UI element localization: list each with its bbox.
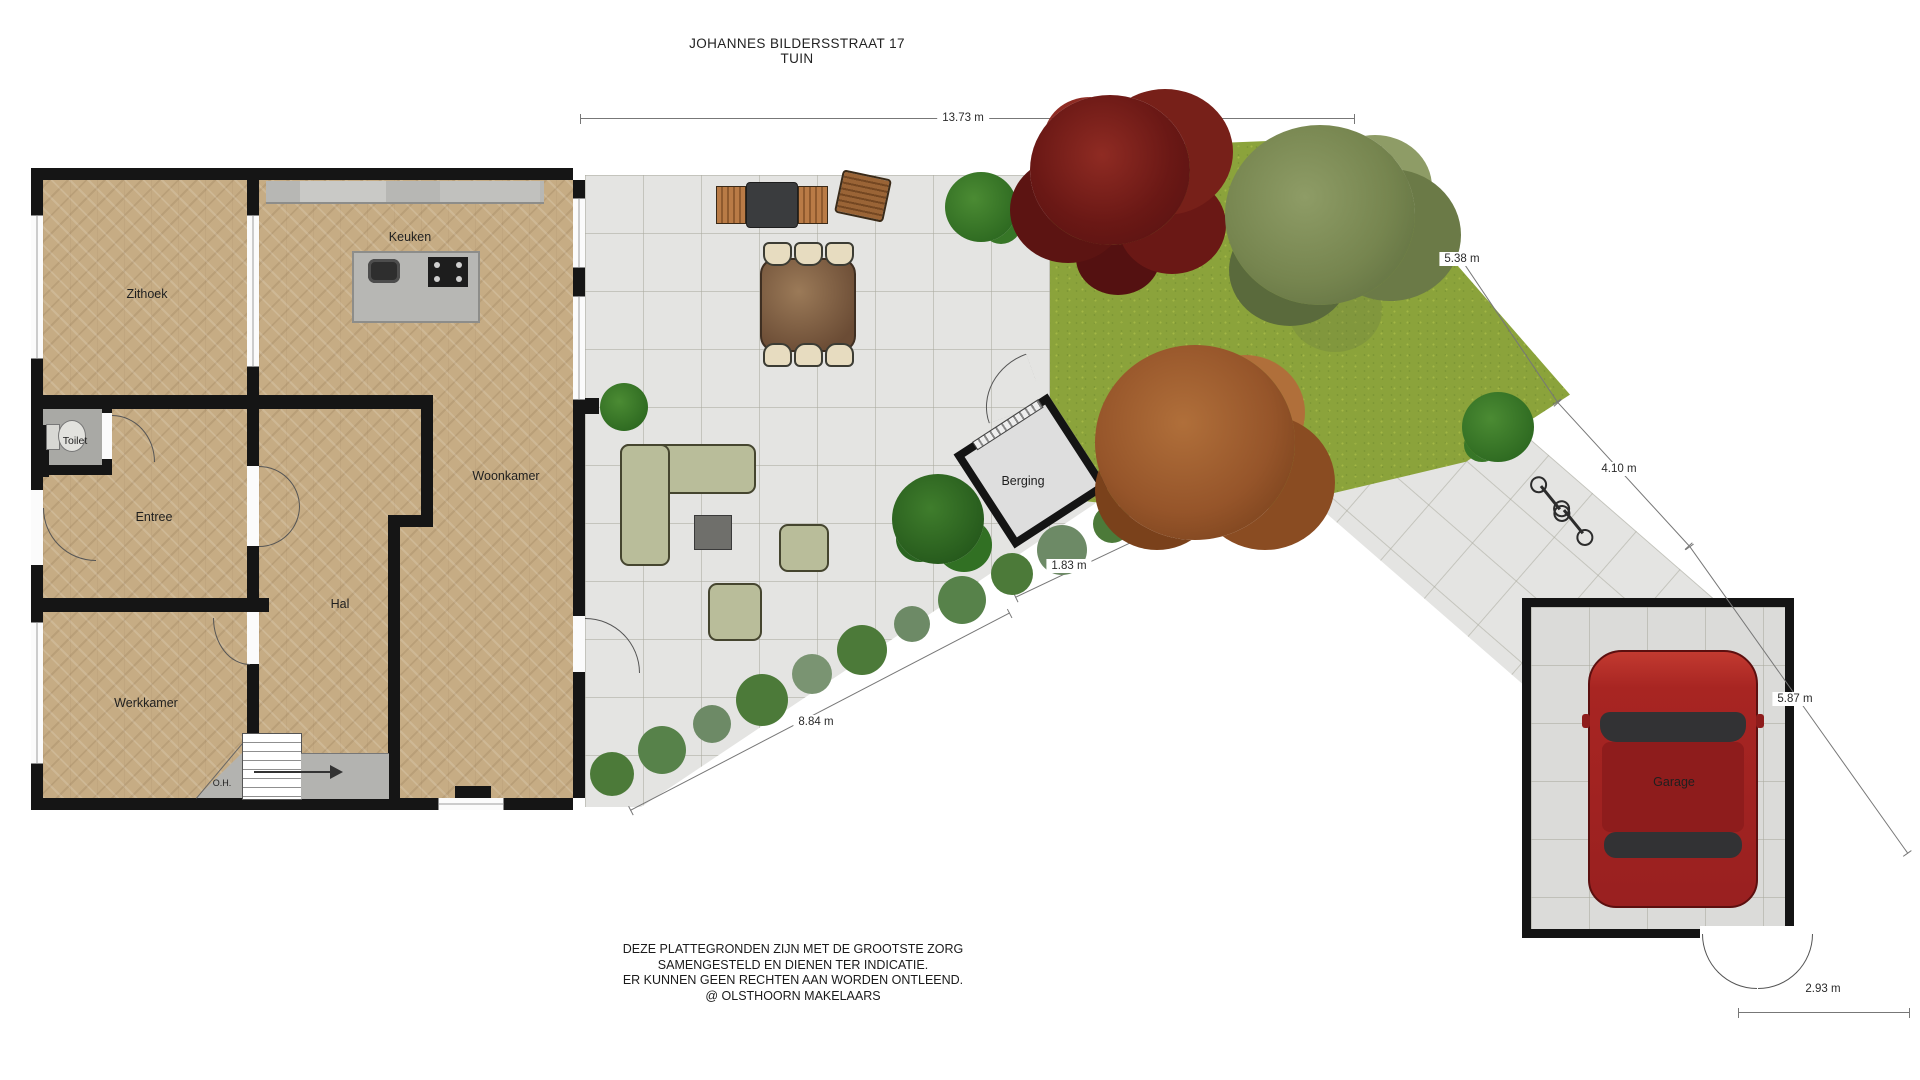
disclaimer: DEZE PLATTEGRONDEN ZIJN MET DE GROOTSTE … [583,942,1003,1004]
door-gap-entree [31,490,43,565]
garden-armchair-bottom [708,583,762,641]
bbq-side-left [716,186,746,224]
dining-chair [825,242,854,266]
dining-chair [825,343,854,367]
dining-chair [794,242,823,266]
room-label-entree: Entree [136,510,173,524]
kitchen-stove [428,257,468,287]
room-label-keuken: Keuken [389,230,431,244]
wall-stub-woonkamer [455,786,491,798]
plan-title-line1: JOHANNES BILDERSSTRAAT 17 [597,36,997,51]
disclaimer-line3: ER KUNNEN GEEN RECHTEN AAN WORDEN ONTLEE… [583,973,1003,989]
door-gap-terrace [573,616,585,672]
dining-chair [763,242,792,266]
tree-rust [1095,345,1295,540]
car-mirror-right [1756,714,1764,728]
coffee-table [694,515,732,550]
bush [945,172,1017,242]
dim-label-538: 5.38 m [1439,252,1484,266]
wall-right [573,180,585,798]
garden-armchair-right [779,524,829,572]
staircase [242,733,302,800]
stove-burner [434,262,440,268]
bbq-side-right [798,186,828,224]
room-label-garage: Garage [1653,775,1695,789]
garage-door-arc-right [1758,934,1813,989]
car-rear-window [1604,832,1742,858]
dim-label-410: 4.10 m [1596,462,1641,476]
disclaimer-line4: @ OLSTHOORN MAKELAARS [583,989,1003,1005]
wall-hal-woonkamer-upper [421,403,433,523]
tree-olive [1225,125,1415,305]
room-label-toilet: Toilet [63,435,88,447]
dim-label-top: 13.73 m [937,111,989,125]
wall-pier-terrace [585,398,599,414]
kitchen-counter-segment2 [440,181,540,202]
wall-hal-woonkamer-lower [388,515,400,800]
wall-zithoek-bottom [31,395,433,409]
window-woonkamer-right1 [573,198,585,268]
wall-top [31,168,573,180]
dim-label-884: 8.84 m [793,715,838,729]
tree-red [1030,95,1190,245]
room-label-zithoek: Zithoek [127,287,168,301]
room-label-werkkamer: Werkkamer [114,696,178,710]
disclaimer-line2: SAMENGESTELD EN DIENEN TER INDICATIE. [583,958,1003,974]
garage-door-arc-left [1702,934,1757,989]
car-windshield [1600,712,1746,742]
plan-title: JOHANNES BILDERSSTRAAT 17 TUIN [597,36,997,66]
dim-label-587: 5.87 m [1772,692,1817,706]
wall-werkkamer-top [31,598,269,612]
dining-chair [794,343,823,367]
dim-line-293 [1738,1012,1910,1013]
room-label-hal: Hal [331,597,350,611]
window-zithoek-left [31,215,43,359]
dining-chair [763,343,792,367]
room-label-woonkamer: Woonkamer [472,469,539,483]
bush [1462,392,1534,462]
dim-label-293: 2.93 m [1800,982,1845,996]
dining-table [760,258,856,352]
stair-arrow-head [330,765,343,779]
kitchen-sink [368,259,400,283]
garden-sofa-vertical [620,444,670,566]
door-gap-double [247,466,259,546]
door-gap-toilet [102,413,112,459]
window-divider-glass [247,215,259,367]
bush [600,383,648,431]
dim-label-183: 1.83 m [1046,559,1091,573]
floorplan-canvas: 13.73 m 5.38 m 4.10 m 5.87 m 1.83 m 8.84… [0,0,1920,1080]
window-woonkamer-bottom [438,798,504,810]
room-label-oh: O.H. [213,778,232,788]
disclaimer-line1: DEZE PLATTEGRONDEN ZIJN MET DE GROOTSTE … [583,942,1003,958]
bush [892,474,984,564]
bbq-body [746,182,798,228]
window-woonkamer-right2 [573,296,585,400]
stair-landing [301,753,389,799]
car-mirror-left [1582,714,1590,728]
room-label-berging: Berging [1001,474,1044,488]
plan-title-line2: TUIN [597,51,997,66]
hedge-row [590,752,634,796]
window-werkkamer-left [31,622,43,764]
stair-arrow-line [254,771,332,773]
kitchen-counter-segment [300,181,386,202]
